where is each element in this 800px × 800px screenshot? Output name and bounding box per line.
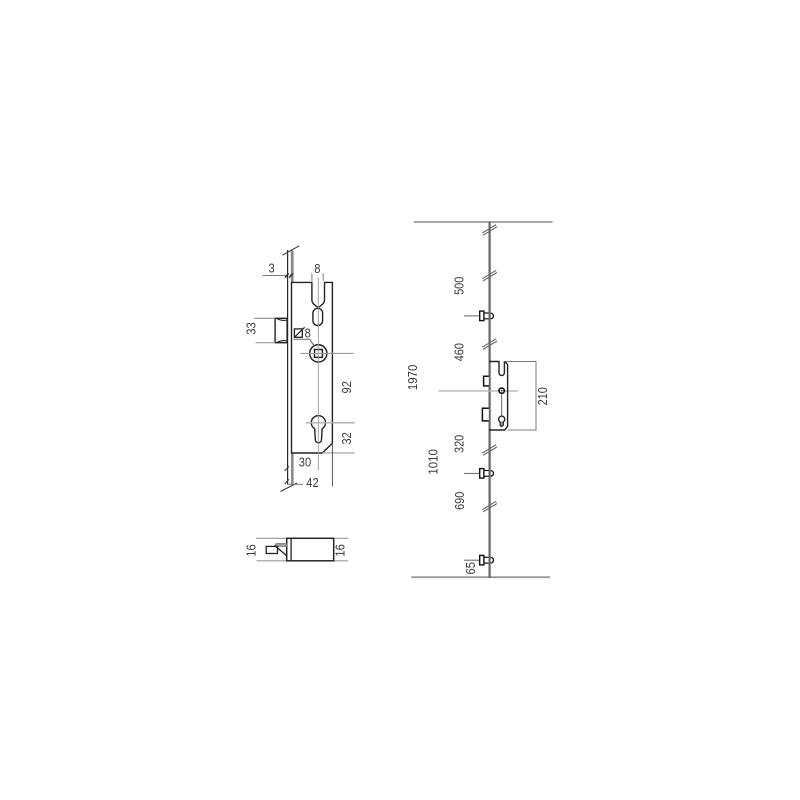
svg-text:3: 3 (269, 260, 275, 275)
svg-text:8: 8 (305, 326, 311, 341)
svg-text:1010: 1010 (425, 449, 440, 474)
svg-text:16: 16 (333, 544, 348, 556)
svg-text:92: 92 (339, 381, 354, 393)
svg-text:320: 320 (452, 435, 467, 453)
svg-text:500: 500 (452, 277, 467, 295)
svg-text:460: 460 (452, 343, 467, 361)
svg-text:42: 42 (306, 475, 318, 490)
svg-text:210: 210 (535, 387, 550, 405)
svg-text:30: 30 (299, 454, 311, 469)
svg-text:8: 8 (314, 261, 320, 276)
svg-text:1970: 1970 (405, 365, 420, 390)
svg-text:32: 32 (339, 432, 354, 444)
svg-text:65: 65 (463, 562, 478, 574)
svg-text:33: 33 (244, 322, 259, 334)
svg-text:16: 16 (244, 544, 259, 556)
svg-text:690: 690 (452, 492, 467, 510)
